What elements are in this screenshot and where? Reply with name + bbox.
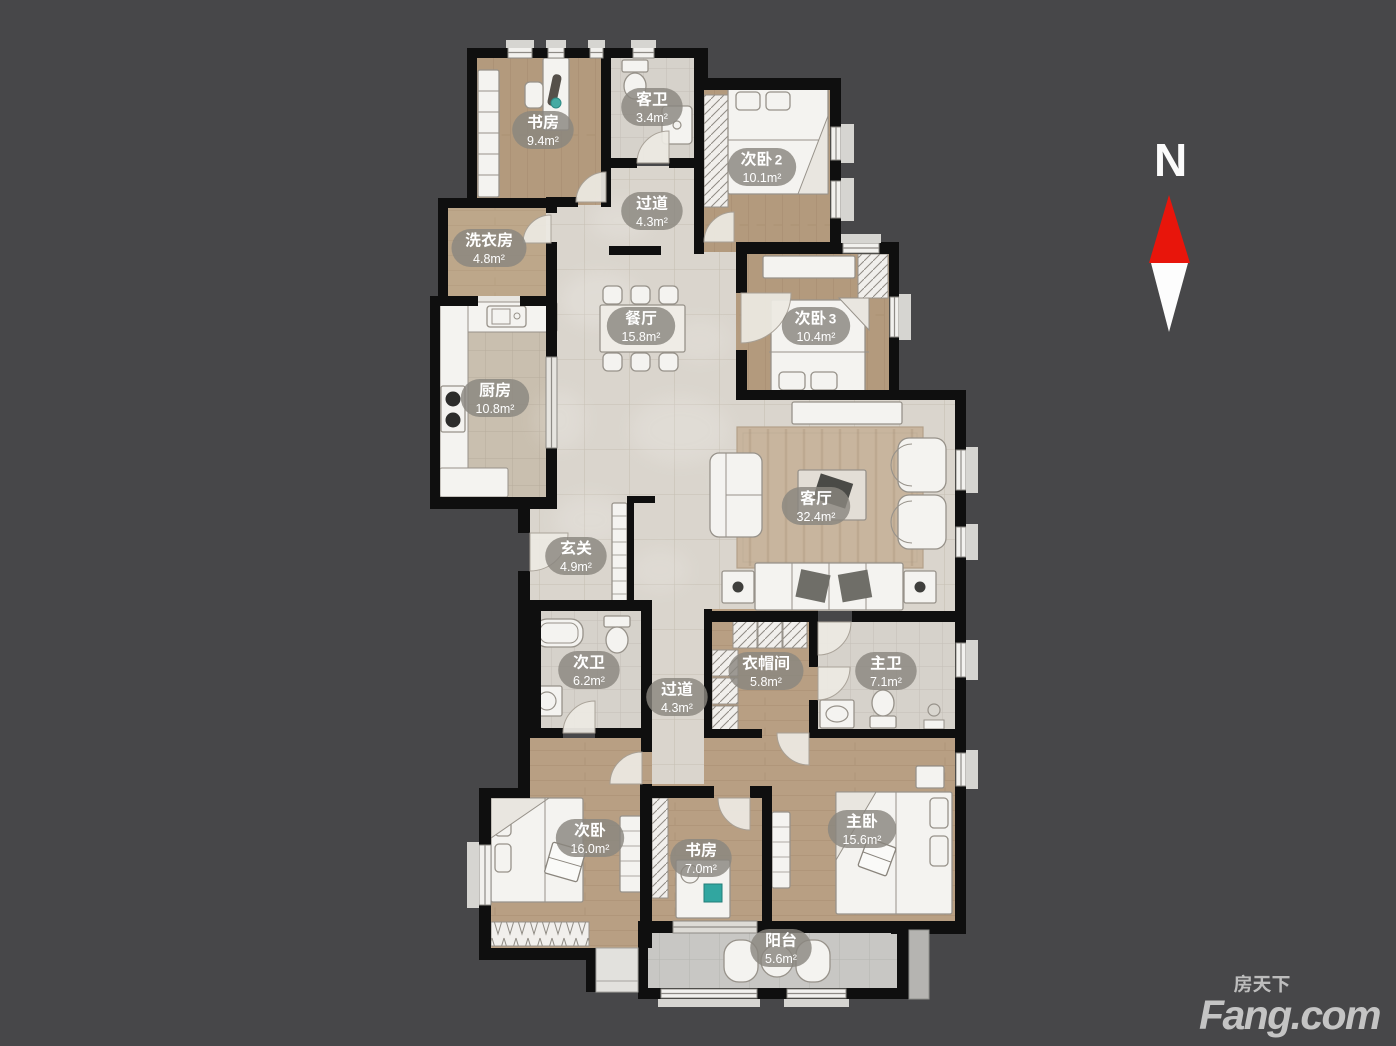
- svg-text:4.9m²: 4.9m²: [560, 560, 592, 574]
- svg-text:15.6m²: 15.6m²: [843, 833, 882, 847]
- svg-text:32.4m²: 32.4m²: [797, 510, 836, 524]
- svg-text:N: N: [1154, 134, 1187, 186]
- svg-text:7.1m²: 7.1m²: [870, 675, 902, 689]
- svg-text:15.8m²: 15.8m²: [622, 330, 661, 344]
- svg-text:16.0m²: 16.0m²: [571, 842, 610, 856]
- svg-text:3: 3: [829, 312, 837, 327]
- svg-text:4.3m²: 4.3m²: [636, 215, 668, 229]
- svg-text:Fang.com: Fang.com: [1199, 992, 1380, 1038]
- svg-text:7.0m²: 7.0m²: [685, 862, 717, 876]
- svg-text:9.4m²: 9.4m²: [527, 134, 559, 148]
- svg-text:4.3m²: 4.3m²: [661, 701, 693, 715]
- svg-text:4.8m²: 4.8m²: [473, 252, 505, 266]
- svg-text:5.8m²: 5.8m²: [750, 675, 782, 689]
- svg-text:10.8m²: 10.8m²: [476, 402, 515, 416]
- svg-text:6.2m²: 6.2m²: [573, 674, 605, 688]
- svg-text:3.4m²: 3.4m²: [636, 111, 668, 125]
- svg-text:10.1m²: 10.1m²: [743, 171, 782, 185]
- svg-text:5.6m²: 5.6m²: [765, 952, 797, 966]
- svg-text:2: 2: [775, 153, 783, 168]
- svg-text:10.4m²: 10.4m²: [797, 330, 836, 344]
